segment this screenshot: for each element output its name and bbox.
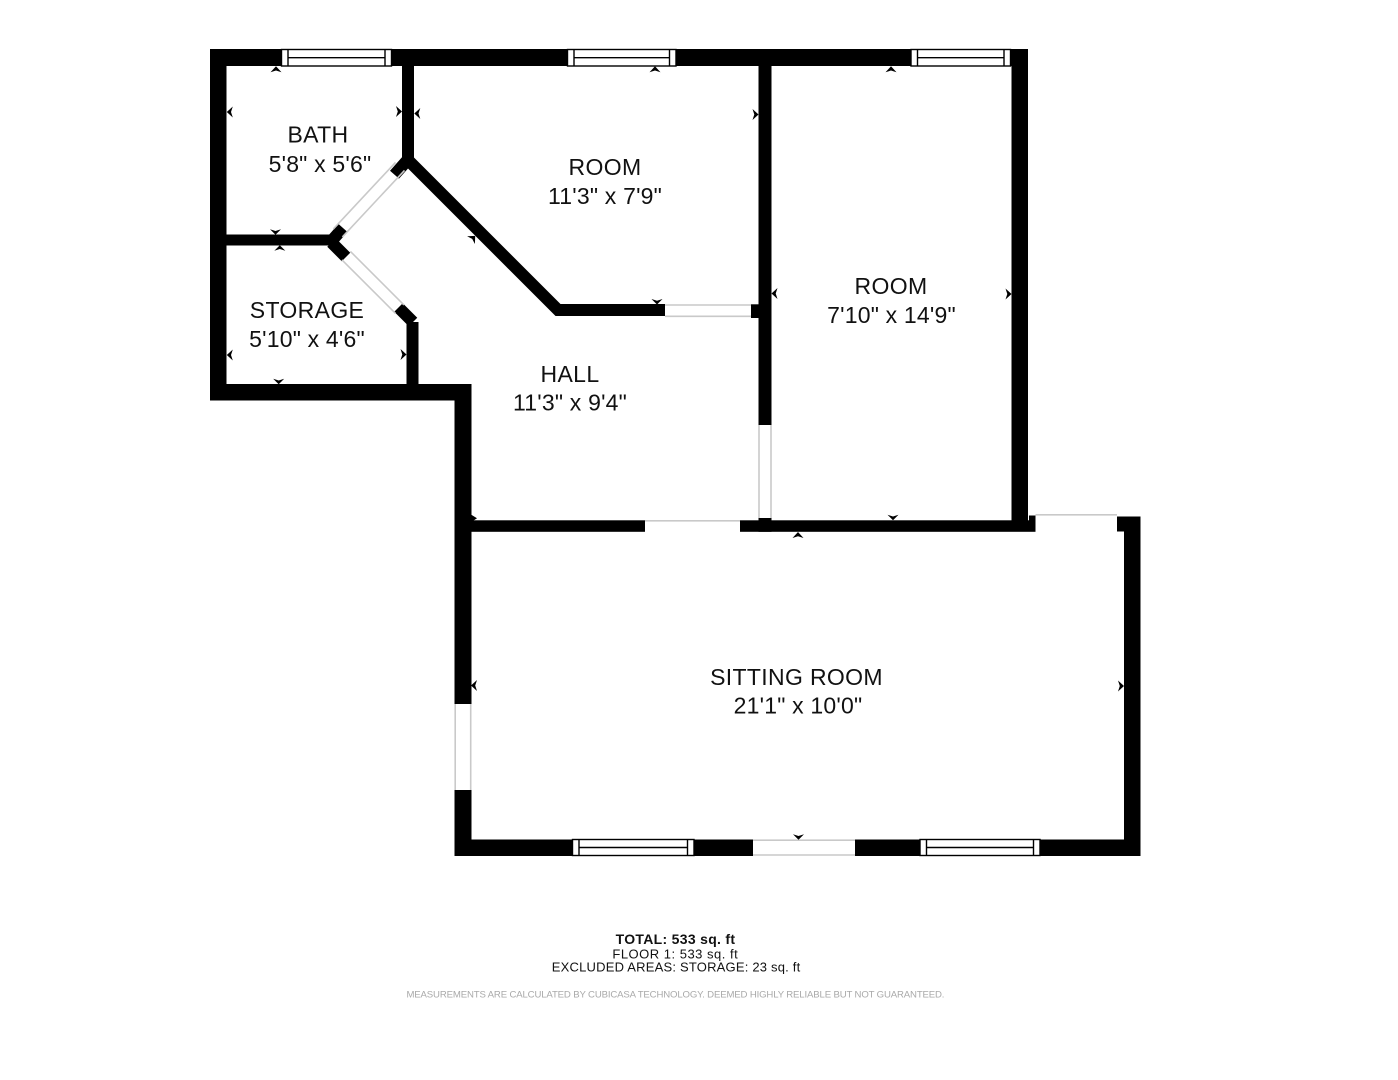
svg-text:5'10" x 4'6": 5'10" x 4'6"	[249, 326, 365, 352]
svg-text:TOTAL: 533 sq. ft: TOTAL: 533 sq. ft	[616, 931, 736, 947]
svg-text:7'10" x 14'9": 7'10" x 14'9"	[827, 302, 956, 328]
svg-text:MEASUREMENTS ARE CALCULATED BY: MEASUREMENTS ARE CALCULATED BY CUBICASA …	[406, 990, 944, 1001]
svg-text:ROOM: ROOM	[569, 154, 642, 180]
svg-text:21'1" x 10'0": 21'1" x 10'0"	[734, 693, 863, 719]
svg-text:5'8" x 5'6": 5'8" x 5'6"	[269, 151, 372, 177]
svg-text:BATH: BATH	[287, 122, 348, 148]
svg-text:EXCLUDED AREAS: STORAGE: 23 sq: EXCLUDED AREAS: STORAGE: 23 sq. ft	[552, 960, 801, 975]
svg-text:HALL: HALL	[541, 361, 600, 387]
svg-text:ROOM: ROOM	[855, 273, 928, 299]
svg-text:STORAGE: STORAGE	[250, 297, 365, 323]
svg-text:SITTING ROOM: SITTING ROOM	[710, 664, 883, 690]
svg-text:11'3" x 9'4": 11'3" x 9'4"	[513, 390, 627, 416]
svg-text:11'3" x 7'9": 11'3" x 7'9"	[548, 183, 662, 209]
